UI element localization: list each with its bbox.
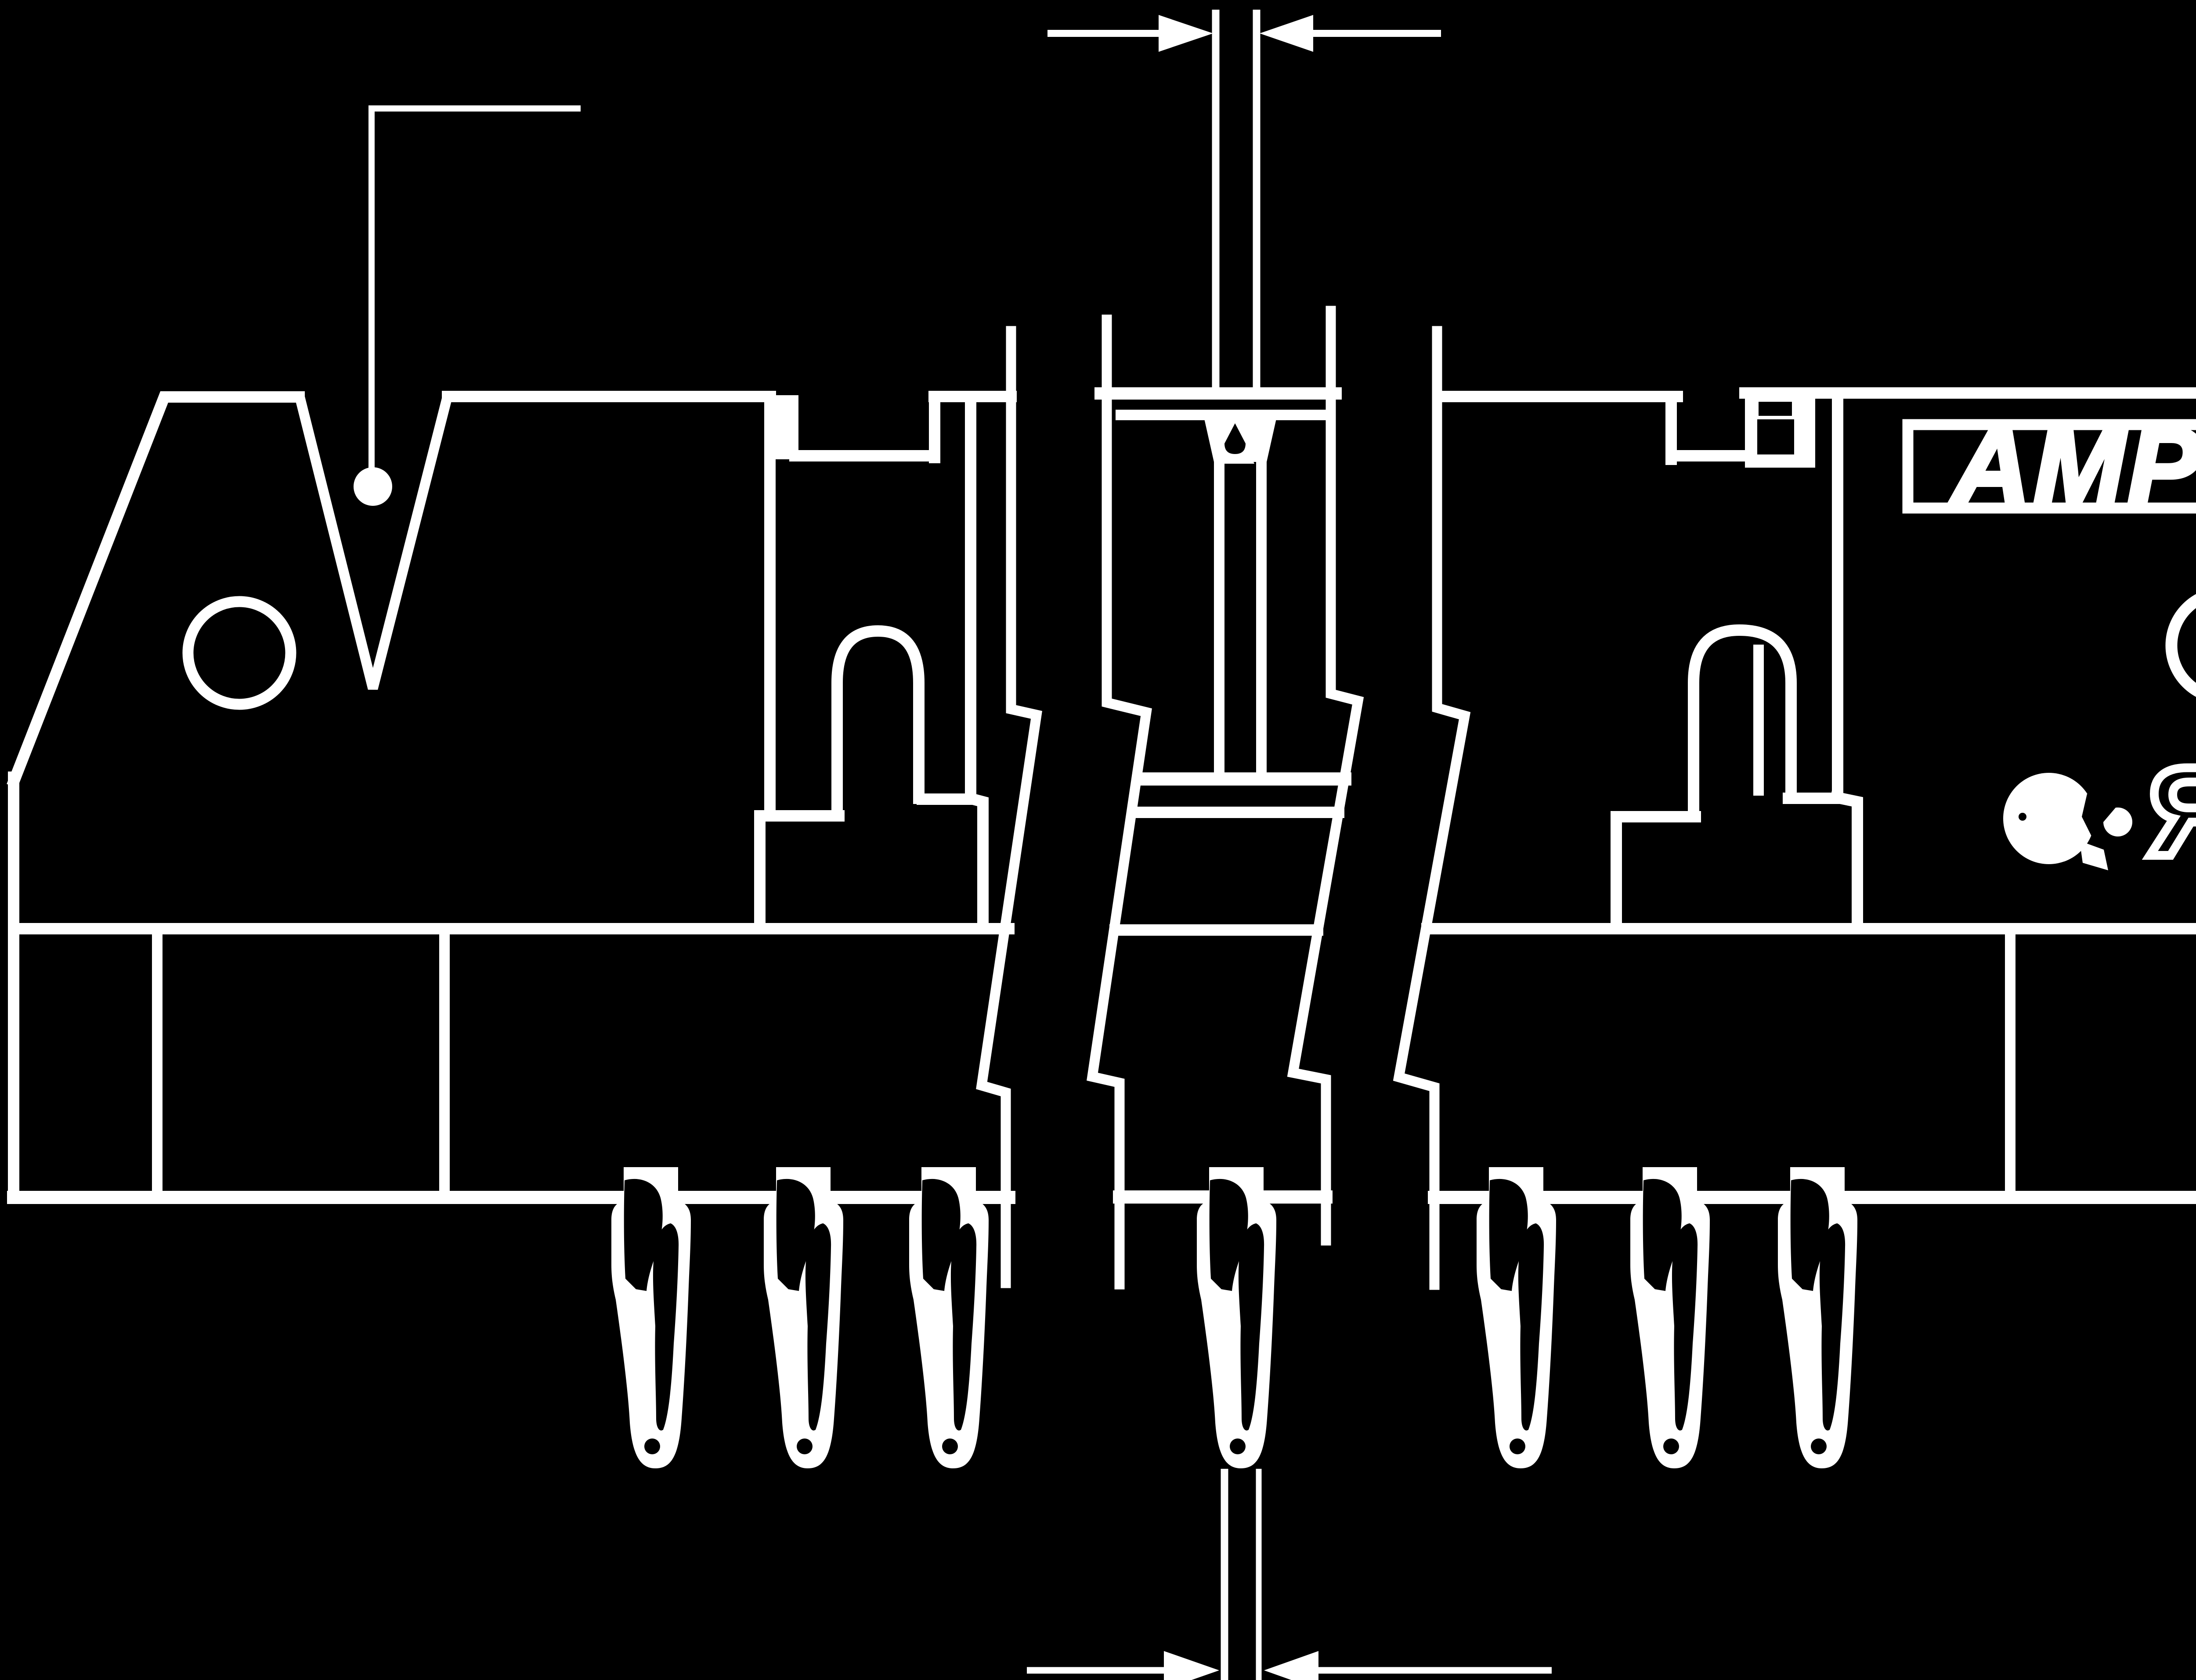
svg-text:AMP: AMP — [1949, 405, 2196, 527]
svg-text:UR: UR — [2147, 740, 2196, 883]
